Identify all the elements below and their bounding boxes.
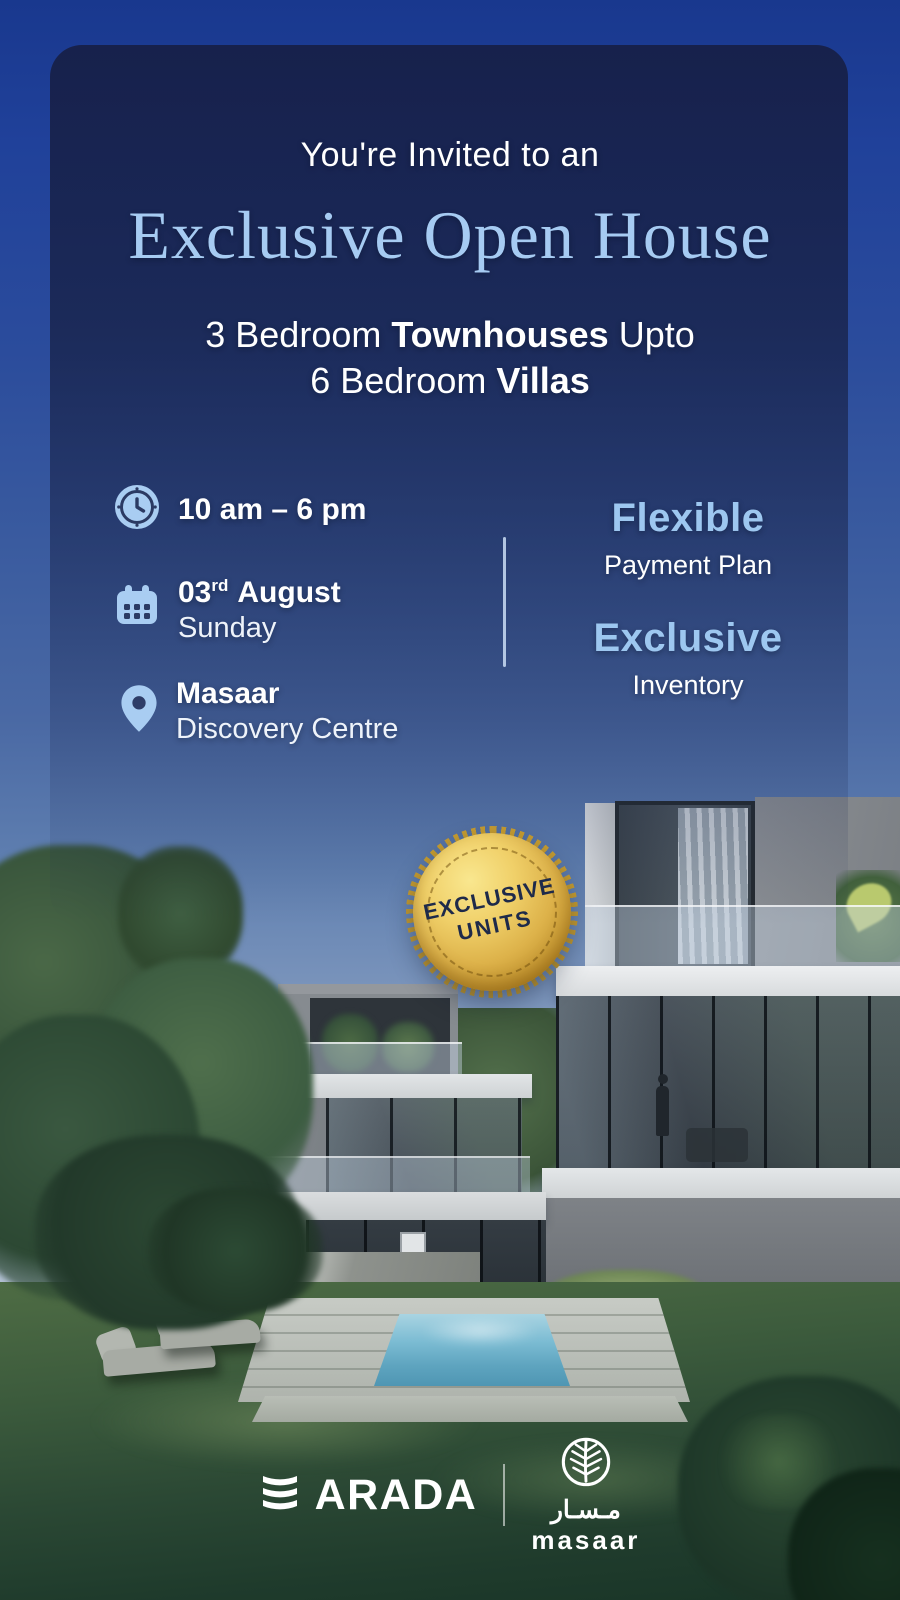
event-time-row: 10 am – 6 pm bbox=[114, 484, 366, 535]
feature-label: Inventory bbox=[538, 670, 838, 701]
pool-deck-edge bbox=[252, 1396, 688, 1422]
feature-highlight: Exclusive bbox=[538, 616, 838, 661]
exclusive-units-seal: EXCLUSIVE UNITS bbox=[406, 826, 578, 998]
arada-triple-arc-icon bbox=[260, 1474, 300, 1517]
feature-highlight: Flexible bbox=[538, 496, 838, 541]
concrete-slab-mid bbox=[542, 1168, 900, 1198]
tree bbox=[148, 1188, 323, 1313]
column-divider bbox=[503, 537, 506, 667]
feature-inventory: Exclusive Inventory bbox=[538, 616, 838, 701]
subtitle: 3 Bedroom Townhouses Upto 6 Bedroom Vill… bbox=[0, 312, 900, 404]
balcony-chairs bbox=[686, 1128, 748, 1162]
event-location: Masaar Discovery Centre bbox=[176, 676, 398, 747]
footer-logos: ARADA مـسـار masaar bbox=[0, 1434, 900, 1556]
arada-wordmark: ARADA bbox=[315, 1471, 478, 1520]
arada-logo: ARADA bbox=[260, 1471, 478, 1520]
seal-text: EXCLUSIVE UNITS bbox=[390, 810, 594, 1014]
logo-divider bbox=[503, 1464, 505, 1526]
page-title: Exclusive Open House bbox=[0, 196, 900, 275]
clock-icon bbox=[114, 484, 160, 535]
feature-label: Payment Plan bbox=[538, 550, 838, 581]
event-date-line: 03rdAugust bbox=[178, 568, 341, 611]
subtitle-line2: 6 Bedroom Villas bbox=[310, 360, 590, 401]
subtitle-line1: 3 Bedroom Townhouses Upto bbox=[205, 314, 695, 355]
open-house-flyer: You're Invited to an Exclusive Open Hous… bbox=[0, 0, 900, 1600]
calendar-icon bbox=[114, 582, 160, 633]
location-name: Masaar bbox=[176, 676, 398, 712]
masaar-latin-wordmark: masaar bbox=[531, 1525, 640, 1556]
masaar-arabic-wordmark: مـسـار bbox=[551, 1495, 621, 1525]
event-time: 10 am – 6 pm bbox=[178, 492, 366, 528]
location-venue: Discovery Centre bbox=[176, 712, 398, 747]
event-weekday: Sunday bbox=[178, 611, 341, 646]
person-silhouette bbox=[656, 1086, 669, 1136]
event-location-row: Masaar Discovery Centre bbox=[120, 676, 398, 747]
masaar-leaf-icon bbox=[559, 1434, 613, 1493]
concrete-slab-upper bbox=[556, 966, 900, 996]
event-date-row: 03rdAugust Sunday bbox=[114, 568, 341, 646]
kicker-text: You're Invited to an bbox=[0, 136, 900, 175]
masaar-logo: مـسـار masaar bbox=[531, 1434, 640, 1556]
location-pin-icon bbox=[120, 683, 158, 740]
pool-reflection bbox=[420, 1316, 540, 1346]
event-date: 03rdAugust Sunday bbox=[178, 568, 341, 646]
feature-payment-plan: Flexible Payment Plan bbox=[538, 496, 838, 581]
person-silhouette-head bbox=[658, 1074, 668, 1084]
